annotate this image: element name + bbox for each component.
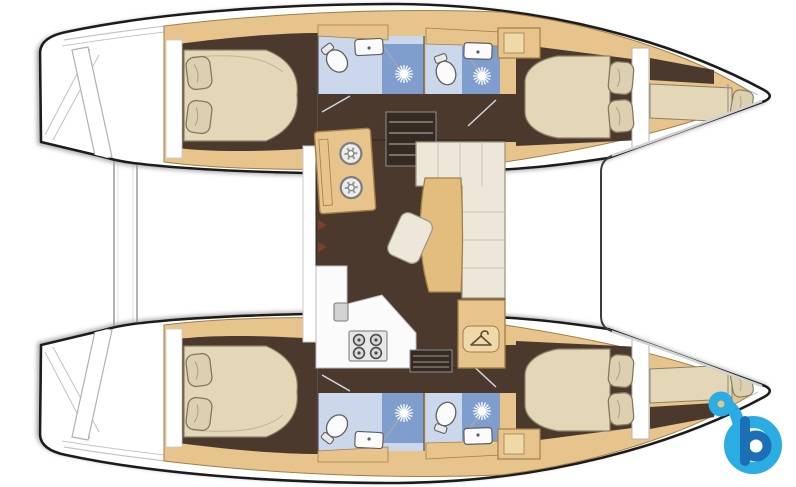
floorplan-canvas	[0, 0, 796, 487]
saloon	[303, 112, 505, 372]
foredeck-divider	[601, 156, 612, 331]
galley-unit	[314, 128, 376, 214]
counter-sink-icon	[334, 303, 348, 321]
headboard	[166, 40, 182, 158]
shower-icon	[395, 65, 413, 83]
sink-icon	[355, 38, 384, 55]
companionway-steps-lower	[410, 350, 452, 372]
cabinet-door	[504, 33, 524, 53]
aft-cabin	[166, 33, 318, 158]
pillow	[185, 56, 213, 91]
catamaran-floorplan	[0, 0, 796, 487]
stove-icon	[349, 331, 387, 361]
shower-icon	[473, 67, 491, 85]
side-walkway	[303, 146, 316, 342]
galley-sink-icon	[340, 176, 362, 198]
logo-b-bowl	[745, 435, 767, 457]
hanging-locker	[458, 300, 505, 368]
forepeak-berth	[650, 58, 754, 124]
sink-icon	[464, 43, 493, 60]
bulkhead	[632, 48, 649, 152]
pillow	[608, 99, 635, 133]
pillow	[608, 61, 635, 95]
pillow	[185, 100, 213, 135]
forward-bathroom	[426, 28, 500, 96]
galley-sink-icon	[340, 142, 362, 164]
double-bed	[525, 56, 610, 138]
